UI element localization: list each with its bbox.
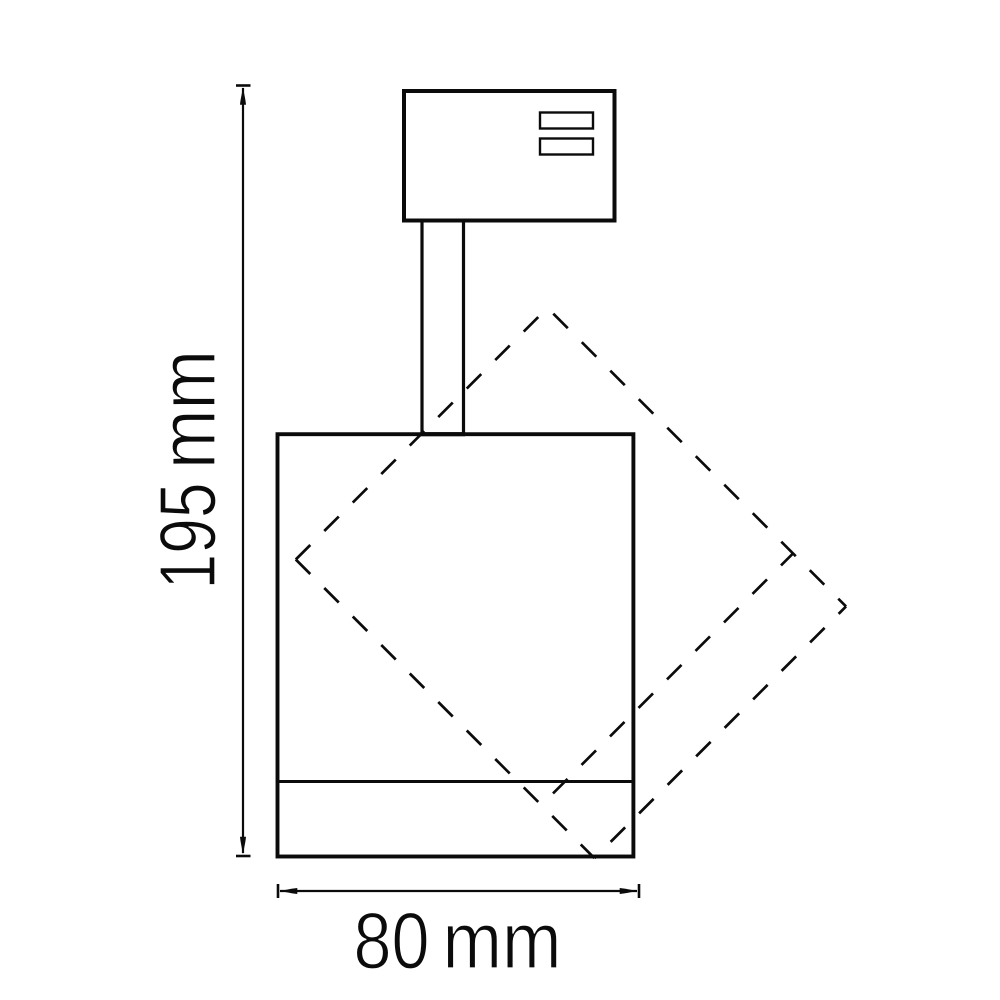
- svg-text:80: 80: [354, 896, 430, 985]
- svg-text:195: 195: [143, 483, 232, 590]
- svg-text:mm: mm: [443, 896, 562, 985]
- svg-text:mm: mm: [143, 350, 232, 469]
